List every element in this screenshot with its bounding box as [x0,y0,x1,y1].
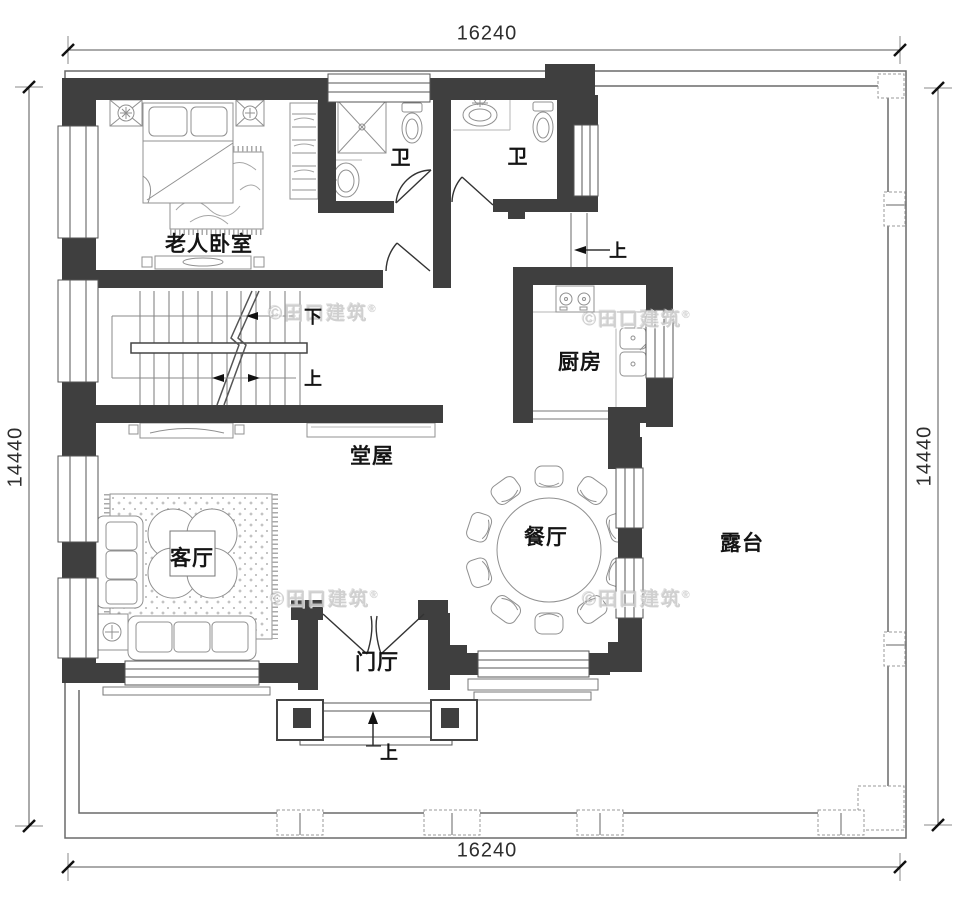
dimension-right: 14440 [914,426,937,487]
shower [338,101,386,153]
toilet [533,102,553,142]
watermark: ©田口建筑® [582,305,691,332]
window-dining-east-1 [616,468,643,528]
watermark: ©田口建筑® [270,585,379,612]
room-label-terrace: 露台 [720,527,764,557]
watermark: ©田口建筑® [268,299,377,326]
window-living-west-1 [58,456,98,542]
window-bath2-east [574,125,598,196]
floor-plan: 16240 16240 14440 14440 老人卧室 卫 卫 厨房 堂屋 客… [0,0,960,903]
main-entry [277,700,477,746]
window-living-west-2 [58,578,98,658]
entry-column-left [277,700,323,740]
stair-handrail [131,343,307,353]
stair-arrow-up-right [248,374,260,382]
stair-arrow-down [246,312,258,320]
room-label-kitchen: 厨房 [558,346,602,376]
door-bath1 [396,170,431,203]
kitchen-sink [620,328,648,376]
dimension-bottom: 16240 [457,840,518,863]
side-entry-label-up: 上 [609,237,627,263]
living-furniture [96,494,275,660]
dimension-left: 14440 [5,427,28,488]
side-entry-steps [571,213,610,267]
window-dining-south [468,651,598,700]
watermark: ©田口建筑® [582,585,691,612]
stair-label-up: 上 [304,365,322,391]
sofa-bottom [128,616,256,660]
toilet [402,103,422,143]
room-label-dining: 餐厅 [524,521,568,551]
main-entry-label-up: 上 [380,739,398,765]
wardrobe [290,103,318,199]
window-bedroom-west [58,126,98,238]
dimension-top: 16240 [457,23,518,46]
room-label-hall: 堂屋 [350,440,394,470]
stair-label-down: 下 [304,303,322,329]
room-label-foyer: 门厅 [355,646,399,676]
window-stair-west [58,280,98,382]
floor-plan-drawing [0,0,960,903]
sofa-left [96,516,143,608]
door-bath2 [452,177,493,205]
room-label-bath1: 卫 [391,142,412,171]
kitchen-threshold [533,411,608,419]
sink [463,99,497,126]
door-bedroom-vestibule [386,243,430,271]
hall-furniture [129,423,435,438]
corner-table [96,614,128,650]
window-bath1-north [328,74,430,102]
room-label-living: 客厅 [170,542,214,572]
bed [143,103,233,203]
entry-column-right [431,700,477,740]
room-label-bedroom: 老人卧室 [165,228,253,258]
bath2-fixtures [453,99,553,142]
window-living-south [103,661,270,695]
room-label-bath2: 卫 [508,141,529,170]
stair-arrow-up-left [212,374,224,382]
